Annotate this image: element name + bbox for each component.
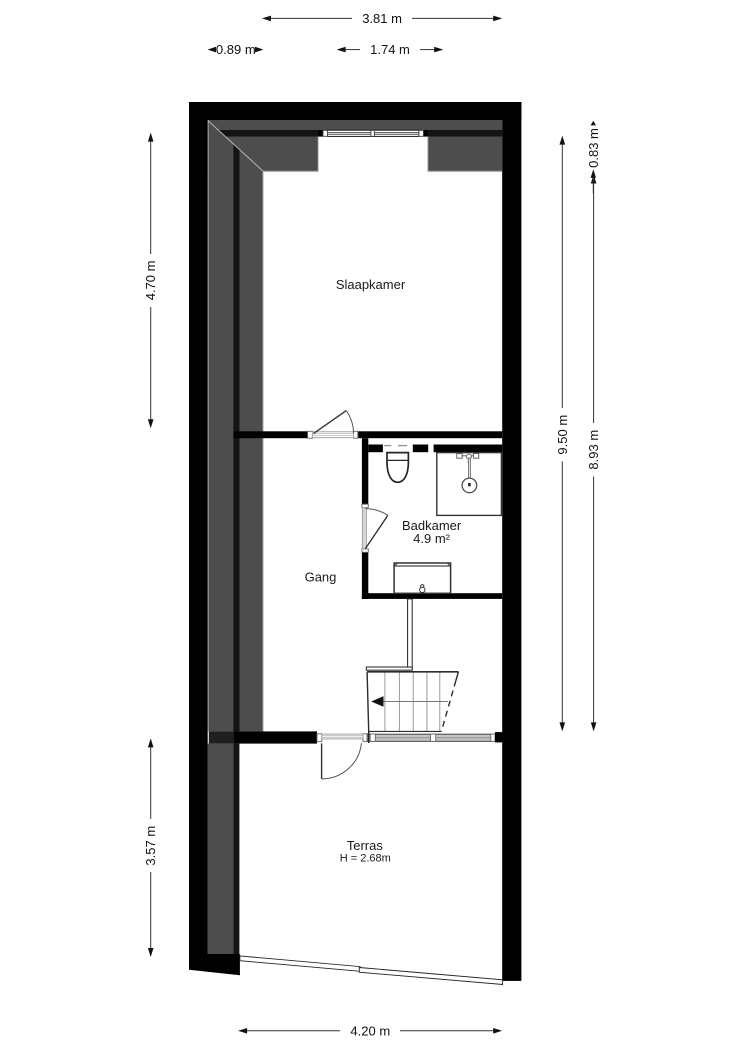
svg-text:4.70 m: 4.70 m — [143, 261, 158, 301]
svg-text:Terras: Terras — [347, 838, 384, 853]
svg-text:H = 2.68m: H = 2.68m — [340, 853, 391, 865]
svg-text:9.50 m: 9.50 m — [555, 415, 570, 455]
svg-text:3.57 m: 3.57 m — [143, 826, 158, 866]
svg-text:8.93 m: 8.93 m — [586, 430, 601, 470]
svg-text:0.83 m: 0.83 m — [586, 128, 601, 168]
svg-text:3.81 m: 3.81 m — [362, 11, 402, 26]
svg-text:0.89 m: 0.89 m — [216, 42, 256, 57]
svg-text:4.9 m²: 4.9 m² — [413, 531, 451, 546]
svg-text:Slaapkamer: Slaapkamer — [336, 277, 406, 292]
svg-text:Gang: Gang — [305, 570, 337, 585]
svg-text:4.20 m: 4.20 m — [350, 1023, 390, 1038]
svg-text:1.74 m: 1.74 m — [370, 42, 410, 57]
